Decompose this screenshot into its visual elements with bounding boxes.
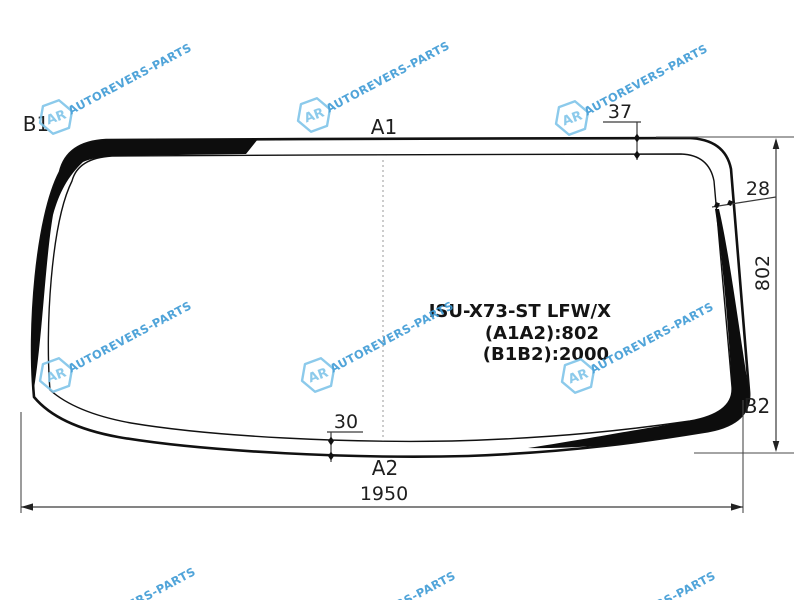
dim-arrow: [731, 503, 743, 510]
dimension-annotations: 37 28 802 3: [21, 101, 794, 513]
dim-tick: [328, 437, 334, 446]
dim-arrow: [21, 503, 33, 510]
glass-inner-contour: [48, 154, 732, 441]
dim-tick: [634, 134, 640, 143]
watermark: [44, 564, 198, 600]
dim-value-corner-band: 28: [746, 178, 770, 200]
watermark: [304, 568, 458, 600]
dim-tick: [634, 151, 640, 160]
watermark: [564, 568, 718, 600]
watermark: [302, 298, 456, 391]
watermark: [40, 40, 194, 133]
part-info-block: ISU-X73-ST LFW/X (A1A2):802 (B1B2):2000: [429, 301, 611, 365]
windshield-outline: [32, 138, 750, 457]
windshield-diagram-canvas: AR AUTOREVERS-PARTS 37: [0, 0, 800, 600]
dim-value-height: 802: [752, 255, 774, 291]
part-dim-a: (A1A2):802: [485, 323, 599, 344]
dim-value-width: 1950: [360, 483, 408, 505]
watermark: [556, 41, 710, 134]
ceramic-band-left: [32, 139, 258, 394]
dim-tick: [328, 452, 334, 461]
windshield-diagram: AR AUTOREVERS-PARTS 37: [0, 0, 800, 600]
dim-value-bottom-band: 30: [334, 411, 358, 433]
watermark: [40, 298, 194, 391]
dim-bottom-band: 30: [327, 411, 363, 462]
label-a2: A2: [372, 456, 398, 480]
dim-top-band: 37: [603, 101, 641, 160]
label-b2: B2: [744, 394, 770, 418]
dim-arrow: [773, 138, 780, 149]
dim-arrow: [773, 441, 780, 452]
part-code: ISU-X73-ST LFW/X: [429, 301, 611, 322]
dim-corner-band: 28: [712, 178, 776, 208]
glass-outer-contour: [32, 138, 749, 457]
label-a1: A1: [371, 115, 397, 139]
